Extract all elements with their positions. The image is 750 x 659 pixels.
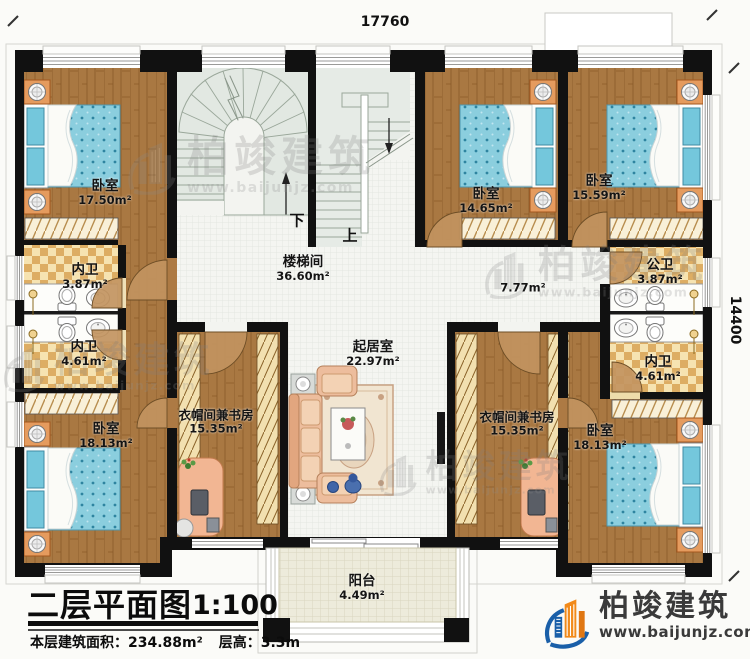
- brand-logo-icon: [543, 590, 593, 652]
- floorplan-drawing: [0, 0, 750, 659]
- desk-left: [175, 458, 223, 537]
- floor-height-label: 层高：: [219, 635, 261, 651]
- floor-area-label: 本层建筑面积：: [30, 635, 128, 651]
- room-label-bedroom-top-mid: 卧室14.65m²: [459, 187, 512, 215]
- room-label-bedroom-bottom-left: 卧室18.13m²: [79, 422, 132, 450]
- room-label-bedroom-top-left: 卧室17.50m²: [78, 179, 131, 207]
- spiral-stair: [177, 66, 308, 215]
- room-label-bath-left-2: 内卫4.61m²: [61, 340, 106, 368]
- room-label-bath-public: 公卫3.87m²: [637, 258, 682, 286]
- room-label-balcony: 阳台4.49m²: [339, 574, 384, 602]
- dimension-top: 17760: [361, 14, 410, 30]
- plan-scale: 1:100: [192, 590, 278, 621]
- plan-title: 二层平面图: [27, 580, 192, 626]
- title-rule-thin: [28, 629, 259, 631]
- room-label-corridor: 7.77m²: [500, 282, 545, 295]
- stair-up-label: 上: [342, 225, 357, 246]
- room-label-bath-right: 内卫4.61m²: [635, 355, 680, 383]
- plan-info: 本层建筑面积：234.88m²层高：3.3m: [30, 632, 300, 652]
- room-label-bedroom-bottom-right: 卧室18.13m²: [573, 424, 626, 452]
- stair-down-label: 下: [289, 210, 304, 231]
- room-label-cloak-right: 衣帽间兼书房15.35m²: [479, 411, 554, 438]
- room-label-bedroom-top-right: 卧室15.59m²: [572, 174, 625, 202]
- room-label-bath-left-1: 内卫3.87m²: [62, 263, 107, 291]
- brand-url: www.baijunjz.com: [599, 623, 750, 641]
- room-label-cloak-left: 衣帽间兼书房15.35m²: [178, 409, 253, 436]
- brand-name: 柏竣建筑: [599, 590, 750, 623]
- room-label-living-room: 起居室22.97m²: [346, 340, 399, 368]
- floor-height-value: 3.3m: [261, 635, 300, 651]
- balcony-sliding-door: [310, 538, 420, 549]
- floorplan-page: 柏竣建筑 www.baijunjz.com 柏竣建筑 www.baijunjz.…: [0, 0, 750, 659]
- room-label-stair-hall: 楼梯间36.60m²: [276, 255, 329, 283]
- floor-area-value: 234.88m²: [128, 635, 203, 651]
- title-rule-thick: [28, 621, 258, 626]
- brand-logo: 柏竣建筑 www.baijunjz.com: [543, 590, 750, 652]
- dimension-right: 14400: [727, 296, 743, 345]
